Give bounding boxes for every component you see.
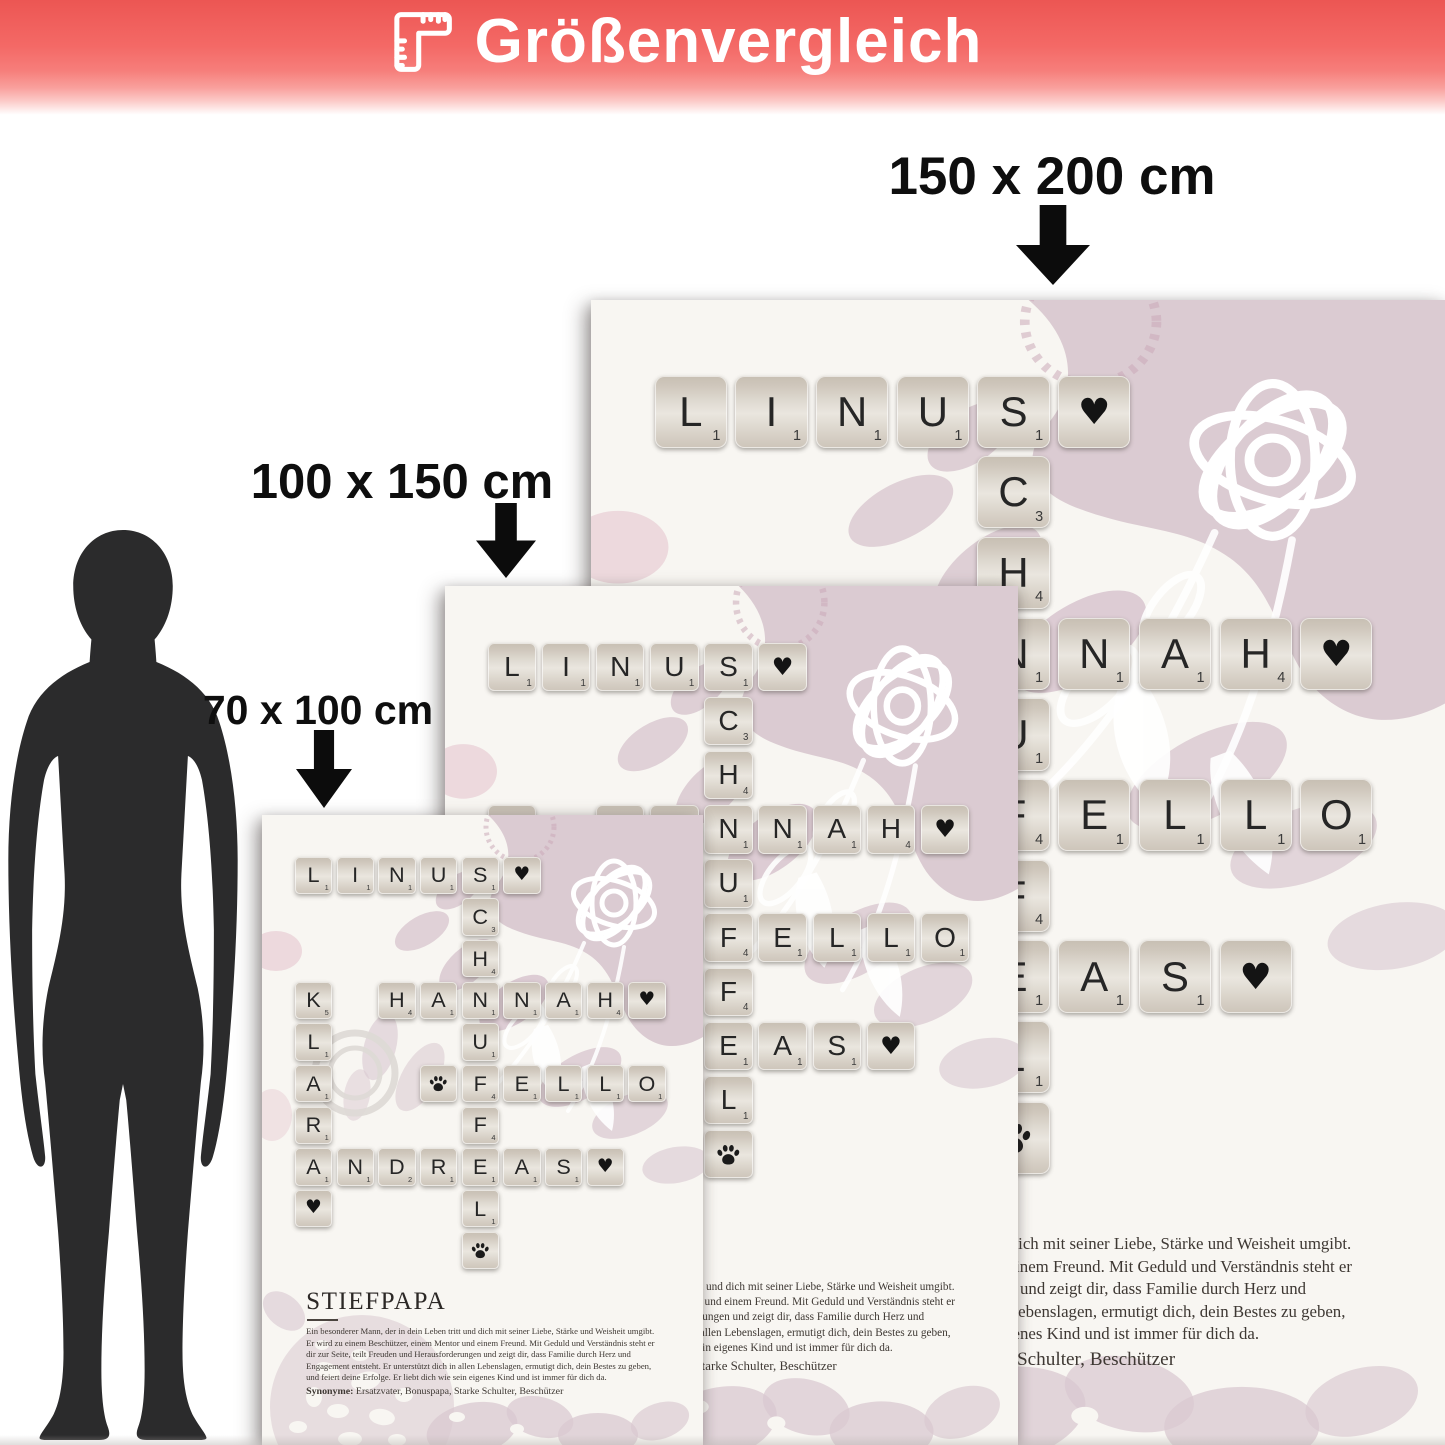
synonyms-list: Ersatzvater, Bonuspapa, Starke Schulter,… <box>356 1386 563 1397</box>
definition-title: STIEFPAPA <box>306 1289 659 1315</box>
tile-letter: C <box>718 707 738 735</box>
tile-value: 1 <box>325 1093 329 1100</box>
tile-letter: U <box>718 869 738 897</box>
letter-tile-l: L1 <box>1139 779 1211 851</box>
letter-tile-a: A1 <box>545 982 582 1019</box>
tile-value: 1 <box>689 679 694 689</box>
letter-tile-h: H4 <box>378 982 415 1019</box>
tile-value: 1 <box>491 1009 495 1016</box>
tile-value: 4 <box>743 949 748 959</box>
letter-tile-n: N1 <box>337 1148 374 1185</box>
size-label-70x100: 70 x 100 cm <box>118 688 518 733</box>
tile-letter: L <box>679 391 702 433</box>
letter-tile-e: E1 <box>758 913 806 961</box>
tile-value: 1 <box>1035 994 1043 1008</box>
poster-preview-70x100: L1I1N1U1S1♥C3H4K5H4A1N1N1A1H4♥L1U1A1 F4E… <box>262 815 703 1445</box>
tile-letter: E <box>473 1156 487 1178</box>
tile-value: 4 <box>616 1009 620 1016</box>
heart-tile: ♥ <box>628 982 665 1019</box>
tile-letter: R <box>431 1156 447 1178</box>
tile-value: 1 <box>797 1058 802 1068</box>
tile-letter: S <box>1161 956 1189 998</box>
tile-letter: L <box>307 864 319 886</box>
tile-letter: A <box>515 1156 529 1178</box>
letter-tile-u: U1 <box>704 859 752 907</box>
tile-letter: U <box>472 1031 488 1053</box>
heart-tile: ♥ <box>1220 940 1292 1012</box>
paw-icon <box>470 1240 491 1261</box>
tile-letter: H <box>1241 633 1271 675</box>
heart-tile: ♥ <box>295 1190 332 1227</box>
letter-tile-l: L1 <box>587 1065 624 1102</box>
letter-tile-n: N1 <box>462 982 499 1019</box>
down-arrow-150x200 <box>1016 205 1090 285</box>
ruler-icon <box>387 7 457 77</box>
letter-tile-n: N1 <box>816 376 888 448</box>
size-label-150x200: 150 x 200 cm <box>852 148 1252 206</box>
letter-tile-a: A1 <box>1058 940 1130 1012</box>
tile-value: 1 <box>905 949 910 959</box>
tile-value: 3 <box>491 926 495 933</box>
tile-letter: H <box>472 948 488 970</box>
tile-letter: L <box>1244 794 1267 836</box>
tile-value: 3 <box>1035 510 1043 524</box>
letter-tile-c: C3 <box>462 898 499 935</box>
tile-letter: L <box>599 1073 611 1095</box>
heart-icon: ♥ <box>1078 394 1110 430</box>
size-label-100x150: 100 x 150 cm <box>202 456 602 510</box>
banner-title: Größenvergleich <box>475 11 983 73</box>
letter-tile-l: L1 <box>488 643 536 691</box>
tile-letter: F <box>720 978 737 1006</box>
tile-value: 1 <box>1035 429 1043 443</box>
tile-letter: S <box>1000 391 1028 433</box>
tile-value: 4 <box>1035 833 1043 847</box>
letter-tile-h: H4 <box>462 940 499 977</box>
tile-value: 1 <box>874 429 882 443</box>
letter-tile-h: H4 <box>867 805 915 853</box>
tile-value: 1 <box>743 679 748 689</box>
letter-tile-c: C3 <box>977 456 1049 528</box>
letter-tile-n: N1 <box>503 982 540 1019</box>
heart-tile: ♥ <box>1300 618 1372 690</box>
letter-tile-u: U1 <box>650 643 698 691</box>
tile-value: 1 <box>575 1093 579 1100</box>
letter-tile-k: K5 <box>295 982 332 1019</box>
tile-value: 1 <box>1197 833 1205 847</box>
tile-letter: E <box>773 924 792 952</box>
heart-icon: ♥ <box>514 866 531 885</box>
letter-tile-s: S1 <box>813 1022 861 1070</box>
tile-value: 1 <box>491 1176 495 1183</box>
letter-tile-i: I1 <box>542 643 590 691</box>
tile-value: 1 <box>960 949 965 959</box>
tile-value: 1 <box>851 949 856 959</box>
tile-value: 1 <box>743 1058 748 1068</box>
letter-tile-i: I1 <box>337 857 374 894</box>
tile-letter: A <box>431 989 445 1011</box>
tile-letter: F <box>474 1073 487 1095</box>
tile-value: 1 <box>526 679 531 689</box>
tile-letter: N <box>347 1156 363 1178</box>
paw-tile <box>420 1065 457 1102</box>
letter-tile-l: L1 <box>655 376 727 448</box>
tile-letter: S <box>473 864 487 886</box>
tile-value: 5 <box>325 1009 329 1016</box>
tile-letter: I <box>352 864 358 886</box>
tile-value: 1 <box>450 1009 454 1016</box>
tile-letter: I <box>766 391 778 433</box>
letter-tile-a: A1 <box>813 805 861 853</box>
tile-value: 4 <box>491 1134 495 1141</box>
tile-value: 1 <box>851 841 856 851</box>
tile-value: 1 <box>533 1176 537 1183</box>
tile-value: 1 <box>743 895 748 905</box>
tile-letter: A <box>306 1073 320 1095</box>
letter-tile-f: F4 <box>462 1107 499 1144</box>
tile-letter: E <box>719 1032 738 1060</box>
tile-value: 1 <box>1116 671 1124 685</box>
tile-value: 1 <box>1358 833 1366 847</box>
tile-letter: L <box>307 1031 319 1053</box>
tile-letter: D <box>389 1156 405 1178</box>
tile-letter: A <box>773 1032 792 1060</box>
letter-tile-e: E1 <box>1058 779 1130 851</box>
tile-letter: N <box>389 864 405 886</box>
tile-value: 1 <box>954 429 962 443</box>
tile-value: 1 <box>851 1058 856 1068</box>
heart-icon: ♥ <box>1320 636 1352 672</box>
letter-tile-h: H4 <box>1220 618 1292 690</box>
tile-letter: U <box>664 653 684 681</box>
tile-value: 4 <box>491 1093 495 1100</box>
tile-letter: A <box>827 815 846 843</box>
letter-tile-s: S1 <box>704 643 752 691</box>
paw-tile <box>704 1130 752 1178</box>
tile-value: 1 <box>533 1009 537 1016</box>
heart-icon: ♥ <box>1239 959 1271 995</box>
heart-tile: ♥ <box>503 857 540 894</box>
letter-tile-n: N1 <box>1058 618 1130 690</box>
letter-tile-a: A1 <box>420 982 457 1019</box>
heart-tile: ♥ <box>1058 376 1130 448</box>
banner-content: Größenvergleich <box>387 7 983 77</box>
letter-tile-l: L1 <box>462 1190 499 1227</box>
heart-icon: ♥ <box>639 991 656 1010</box>
tile-value: 2 <box>408 1176 412 1183</box>
letter-tile-s: S1 <box>1139 940 1211 1012</box>
letter-tile-s: S1 <box>977 376 1049 448</box>
letter-tile-e: E1 <box>503 1065 540 1102</box>
tile-letter: C <box>472 906 488 928</box>
tile-letter: N <box>514 989 530 1011</box>
letter-tile-a: A1 <box>295 1148 332 1185</box>
tile-value: 1 <box>712 429 720 443</box>
tile-letter: K <box>306 989 320 1011</box>
tile-letter: R <box>306 1114 322 1136</box>
tile-letter: I <box>562 653 570 681</box>
tile-letter: S <box>827 1032 846 1060</box>
letter-tile-e: E1 <box>704 1022 752 1070</box>
heart-tile: ♥ <box>921 805 969 853</box>
letter-tile-n: N1 <box>378 857 415 894</box>
letter-tile-r: R1 <box>420 1148 457 1185</box>
letter-tile-l: L1 <box>1220 779 1292 851</box>
tile-letter: N <box>610 653 630 681</box>
tile-value: 4 <box>1035 590 1043 604</box>
definition-underline <box>307 1319 338 1321</box>
letter-tile-l: L1 <box>545 1065 582 1102</box>
heart-tile: ♥ <box>758 643 806 691</box>
tile-value: 1 <box>491 1218 495 1225</box>
definition-block: STIEFPAPA Ein besonderer Mann, der in de… <box>306 1289 659 1399</box>
tile-letter: O <box>934 924 956 952</box>
paw-icon <box>428 1073 449 1094</box>
tile-value: 1 <box>325 1134 329 1141</box>
tile-value: 1 <box>793 429 801 443</box>
heart-icon: ♥ <box>597 1158 614 1177</box>
letter-tile-l: L1 <box>295 1023 332 1060</box>
tile-letter: N <box>1079 633 1109 675</box>
tile-value: 1 <box>743 841 748 851</box>
letter-tile-o: O1 <box>921 913 969 961</box>
tile-value: 4 <box>491 968 495 975</box>
tile-value: 1 <box>1116 833 1124 847</box>
tile-value: 1 <box>325 884 329 891</box>
tile-letter: N <box>718 815 738 843</box>
tile-value: 3 <box>743 733 748 743</box>
size-comparison-graphic: Größenvergleich <box>0 0 1445 1445</box>
tile-letter: A <box>1080 956 1108 998</box>
tile-value: 1 <box>491 884 495 891</box>
tile-value: 1 <box>797 949 802 959</box>
letter-tile-u: U1 <box>897 376 969 448</box>
tile-value: 1 <box>366 884 370 891</box>
tile-letter: O <box>638 1073 655 1095</box>
heart-icon: ♥ <box>880 1034 902 1058</box>
tile-value: 1 <box>325 1176 329 1183</box>
tile-letter: S <box>556 1156 570 1178</box>
tile-value: 1 <box>1116 994 1124 1008</box>
tile-value: 1 <box>616 1093 620 1100</box>
letter-tile-o: O1 <box>1300 779 1372 851</box>
tile-value: 4 <box>743 787 748 797</box>
heart-tile: ♥ <box>587 1148 624 1185</box>
tile-value: 1 <box>325 1051 329 1058</box>
letter-tile-l: L1 <box>704 1076 752 1124</box>
tile-value: 4 <box>905 841 910 851</box>
tile-letter: L <box>474 1198 486 1220</box>
down-arrow-70x100 <box>296 730 352 808</box>
tile-letter: C <box>998 471 1028 513</box>
tile-value: 1 <box>491 1051 495 1058</box>
heart-tile: ♥ <box>867 1022 915 1070</box>
letter-tile-a: A1 <box>503 1148 540 1185</box>
tile-letter: N <box>837 391 867 433</box>
tile-letter: L <box>721 1086 737 1114</box>
tile-value: 4 <box>1035 913 1043 927</box>
down-arrow-100x150 <box>476 503 536 578</box>
heart-icon: ♥ <box>772 655 794 679</box>
letter-tile-n: N1 <box>704 805 752 853</box>
tile-letter: N <box>472 989 488 1011</box>
letter-tile-o: O1 <box>628 1065 665 1102</box>
letter-tile-f: F4 <box>462 1065 499 1102</box>
letter-tile-l: L1 <box>867 913 915 961</box>
tile-value: 1 <box>1035 752 1043 766</box>
tile-letter: F <box>720 924 737 952</box>
tile-letter: A <box>1161 633 1189 675</box>
paw-icon <box>715 1141 742 1168</box>
letter-tile-s: S1 <box>545 1148 582 1185</box>
tile-letter: A <box>556 989 570 1011</box>
letter-tile-u: U1 <box>462 1023 499 1060</box>
tile-value: 1 <box>408 884 412 891</box>
letter-tile-d: D2 <box>378 1148 415 1185</box>
tile-letter: H <box>597 989 613 1011</box>
letter-tile-a: A1 <box>295 1065 332 1102</box>
tile-letter: L <box>883 924 899 952</box>
letter-tile-u: U1 <box>420 857 457 894</box>
bottom-fade <box>0 1435 1445 1445</box>
paw-tile <box>462 1232 499 1269</box>
silhouette-body <box>8 530 237 1440</box>
definition-synonyms: Synonyme: Ersatzvater, Bonuspapa, Starke… <box>306 1386 659 1399</box>
letter-tile-h: H4 <box>587 982 624 1019</box>
tile-value: 1 <box>450 884 454 891</box>
letter-tile-e: E1 <box>462 1148 499 1185</box>
tile-value: 1 <box>366 1176 370 1183</box>
letter-tile-n: N1 <box>596 643 644 691</box>
tile-value: 1 <box>533 1093 537 1100</box>
letter-tile-r: R1 <box>295 1107 332 1144</box>
letter-tile-l: L1 <box>295 857 332 894</box>
tile-value: 1 <box>450 1176 454 1183</box>
tile-letter: A <box>306 1156 320 1178</box>
tile-letter: U <box>431 864 447 886</box>
banner: Größenvergleich <box>0 0 1445 122</box>
letter-tile-h: H4 <box>704 751 752 799</box>
tile-value: 4 <box>743 1003 748 1013</box>
tile-value: 1 <box>797 841 802 851</box>
tile-value: 1 <box>575 1176 579 1183</box>
heart-icon: ♥ <box>305 1199 322 1218</box>
letter-tile-i: I1 <box>735 376 807 448</box>
letter-tile-s: S1 <box>462 857 499 894</box>
tile-value: 4 <box>408 1009 412 1016</box>
letter-tile-f: F4 <box>704 913 752 961</box>
tile-value: 1 <box>743 1112 748 1122</box>
tile-letter: S <box>719 653 738 681</box>
tile-letter: H <box>389 989 405 1011</box>
heart-icon: ♥ <box>934 817 956 841</box>
tile-letter: L <box>829 924 845 952</box>
letter-tile-n: N1 <box>758 805 806 853</box>
tile-letter: U <box>918 391 948 433</box>
tile-value: 1 <box>575 1009 579 1016</box>
tile-value: 1 <box>635 679 640 689</box>
letter-tile-c: C3 <box>704 697 752 745</box>
synonyms-label: Synonyme: <box>306 1386 353 1397</box>
tile-value: 1 <box>1035 1075 1043 1089</box>
letter-tile-a: A1 <box>758 1022 806 1070</box>
tile-value: 1 <box>1197 671 1205 685</box>
tile-value: 1 <box>1197 994 1205 1008</box>
tile-letter: O <box>1320 794 1353 836</box>
tile-letter: N <box>773 815 793 843</box>
definition-body: Ein besonderer Mann, der in dein Leben t… <box>306 1326 659 1384</box>
tile-letter: L <box>558 1073 570 1095</box>
tile-value: 1 <box>1277 833 1285 847</box>
woman-silhouette <box>4 528 242 1440</box>
tile-letter: F <box>474 1114 487 1136</box>
tile-letter: L <box>1163 794 1186 836</box>
letter-tile-l: L1 <box>813 913 861 961</box>
tile-letter: H <box>718 761 738 789</box>
letter-tile-f: F4 <box>704 968 752 1016</box>
tile-value: 4 <box>1277 671 1285 685</box>
tile-letter: H <box>881 815 901 843</box>
tile-letter: E <box>515 1073 529 1095</box>
tile-letter: E <box>1080 794 1108 836</box>
tile-letter: L <box>504 653 520 681</box>
tile-value: 1 <box>1035 671 1043 685</box>
tile-value: 1 <box>658 1093 662 1100</box>
tile-value: 1 <box>581 679 586 689</box>
letter-tile-a: A1 <box>1139 618 1211 690</box>
